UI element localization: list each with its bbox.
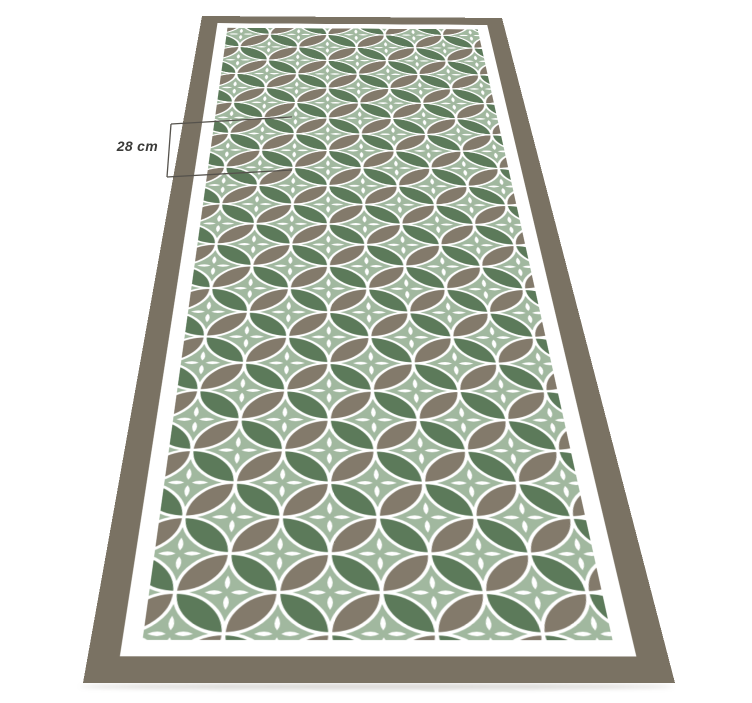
rug-image	[83, 16, 675, 683]
product-stage: 28 cm	[0, 0, 752, 703]
rug-floor-shadow	[80, 684, 673, 689]
measurement-label: 28 cm	[108, 138, 158, 154]
